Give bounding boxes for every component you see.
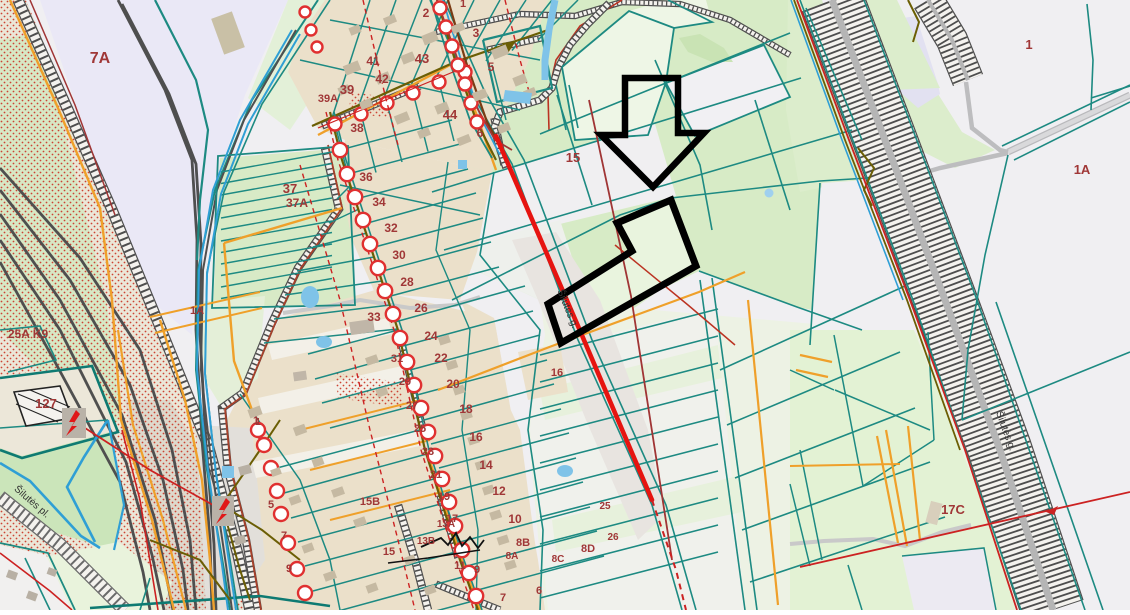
svg-text:32: 32: [384, 221, 398, 235]
svg-text:20: 20: [446, 377, 460, 391]
svg-text:38: 38: [350, 121, 364, 135]
svg-text:37: 37: [283, 181, 297, 196]
svg-text:1A: 1A: [190, 305, 204, 317]
svg-text:28: 28: [400, 275, 414, 289]
svg-text:41: 41: [366, 54, 380, 68]
svg-text:8A: 8A: [506, 551, 519, 562]
svg-text:27: 27: [406, 400, 418, 412]
svg-text:42: 42: [375, 72, 389, 86]
svg-text:1A: 1A: [1074, 162, 1091, 177]
svg-text:3: 3: [473, 26, 480, 40]
svg-text:26: 26: [414, 301, 428, 315]
svg-text:16: 16: [551, 367, 563, 379]
svg-text:29: 29: [399, 376, 411, 388]
svg-text:1: 1: [255, 417, 261, 428]
svg-text:7: 7: [281, 530, 287, 542]
svg-text:37A: 37A: [286, 196, 308, 210]
svg-text:16: 16: [469, 430, 483, 444]
svg-text:11: 11: [454, 560, 466, 572]
svg-text:33: 33: [367, 310, 381, 324]
svg-text:5: 5: [488, 60, 495, 74]
svg-text:6: 6: [477, 126, 484, 140]
svg-text:34: 34: [372, 195, 386, 209]
svg-text:5: 5: [268, 499, 274, 511]
svg-text:14: 14: [479, 458, 493, 472]
svg-text:22: 22: [434, 351, 448, 365]
svg-text:8D: 8D: [581, 543, 595, 555]
svg-text:25: 25: [414, 423, 426, 435]
svg-text:26: 26: [607, 532, 619, 543]
svg-text:12: 12: [492, 484, 506, 498]
svg-text:25A K9: 25A K9: [8, 327, 49, 341]
svg-text:15: 15: [566, 150, 580, 165]
svg-text:21: 21: [430, 469, 442, 481]
svg-text:17C: 17C: [941, 502, 965, 517]
svg-text:8C: 8C: [552, 554, 565, 565]
svg-text:6: 6: [536, 585, 542, 597]
svg-text:9: 9: [286, 563, 292, 575]
svg-text:23: 23: [422, 446, 434, 458]
svg-text:15: 15: [383, 546, 395, 558]
svg-text:19: 19: [438, 491, 450, 503]
svg-text:1: 1: [460, 0, 466, 10]
svg-text:31: 31: [391, 353, 403, 365]
svg-text:7: 7: [500, 592, 506, 604]
svg-text:10: 10: [508, 512, 522, 526]
svg-text:8B: 8B: [516, 537, 530, 549]
svg-text:39A: 39A: [318, 93, 338, 105]
svg-text:13A: 13A: [437, 519, 455, 530]
svg-text:9: 9: [474, 564, 480, 576]
svg-text:7A: 7A: [90, 50, 111, 67]
svg-text:18: 18: [459, 402, 473, 416]
svg-text:13B: 13B: [417, 536, 435, 547]
svg-text:39: 39: [340, 82, 354, 97]
svg-text:127: 127: [35, 396, 57, 411]
svg-text:2: 2: [423, 6, 430, 20]
svg-text:36: 36: [359, 170, 373, 184]
svg-text:1: 1: [1025, 37, 1032, 52]
svg-text:30: 30: [392, 248, 406, 262]
svg-text:25: 25: [599, 501, 611, 512]
svg-text:43: 43: [415, 51, 429, 66]
svg-text:15B: 15B: [360, 496, 380, 508]
svg-text:44: 44: [443, 107, 458, 122]
svg-text:24: 24: [424, 329, 438, 343]
